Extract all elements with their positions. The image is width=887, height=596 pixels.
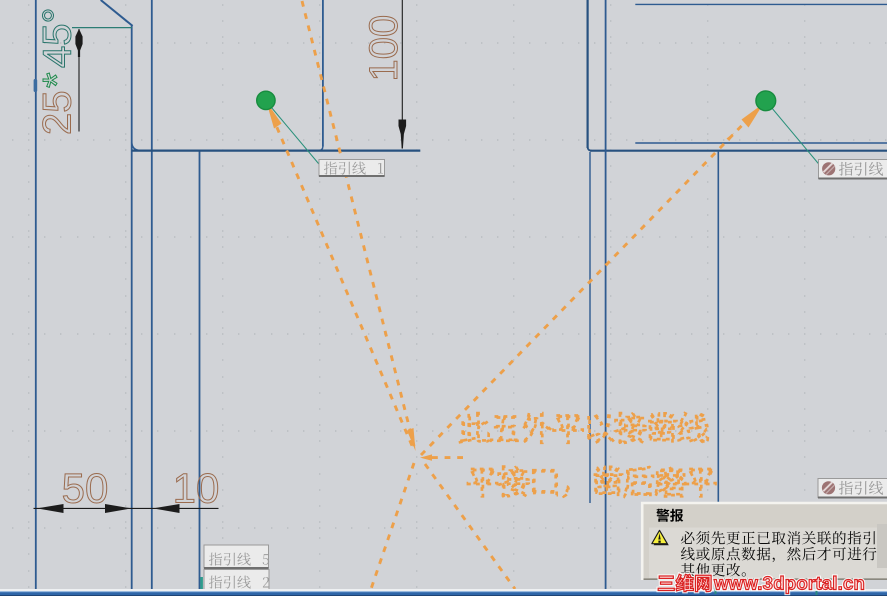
svg-text:100: 100 xyxy=(362,15,406,82)
svg-text:www.3dportal.cn: www.3dportal.cn xyxy=(713,573,865,594)
svg-text:10: 10 xyxy=(173,465,220,512)
svg-text:50: 50 xyxy=(62,465,109,512)
svg-text:45°: 45° xyxy=(36,8,80,69)
svg-text:*: * xyxy=(36,72,80,88)
svg-text:25: 25 xyxy=(36,91,80,136)
